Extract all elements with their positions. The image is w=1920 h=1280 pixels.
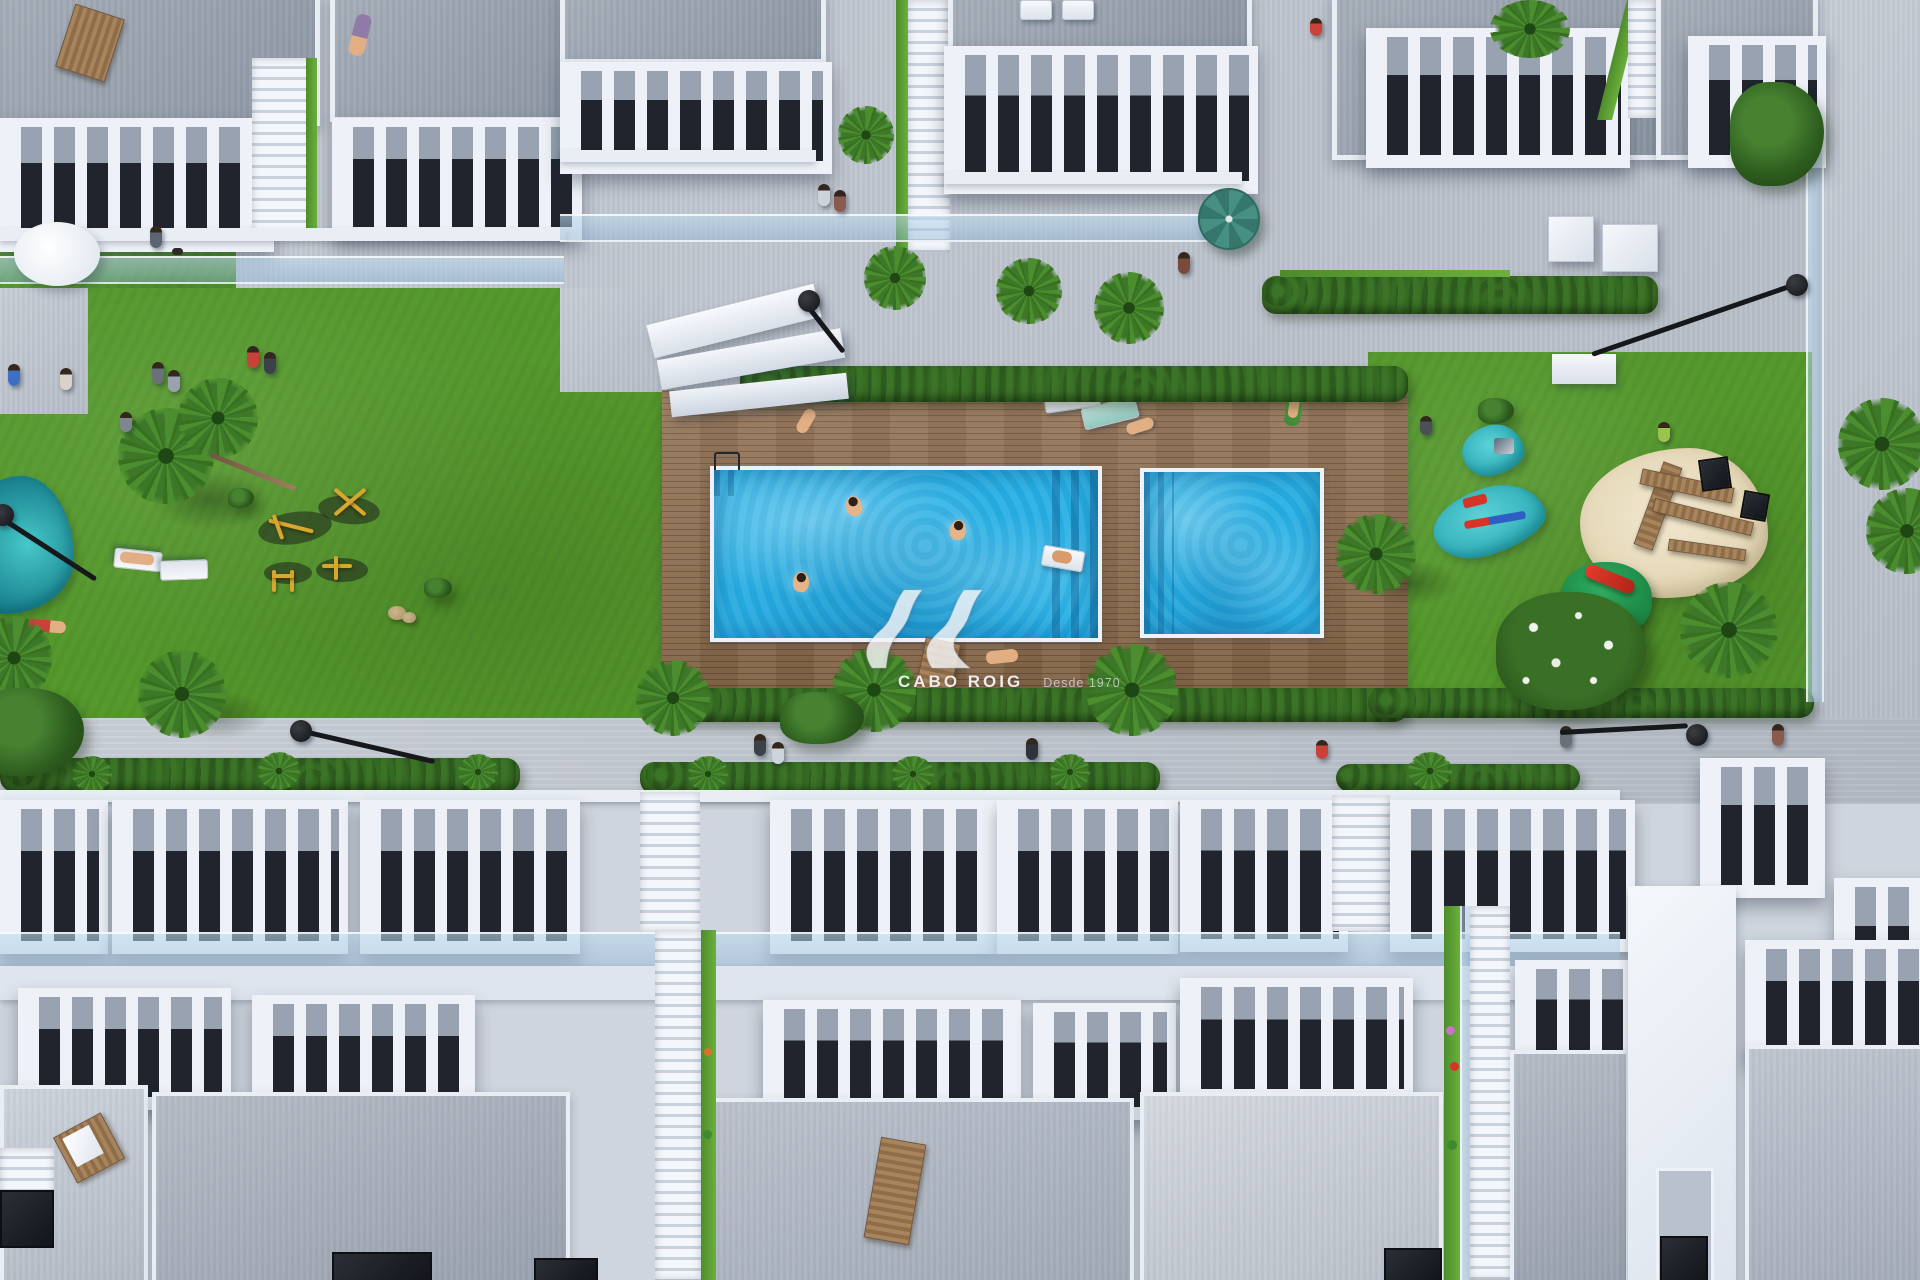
rooftop-terrace <box>1745 1045 1920 1280</box>
balcony-terrace <box>1745 940 1920 1062</box>
parasol <box>1198 188 1260 250</box>
seated-person <box>1178 252 1190 274</box>
palm-tree <box>1490 0 1570 58</box>
pedestrian <box>1772 724 1784 746</box>
pedestrian <box>834 190 846 212</box>
building-base <box>560 150 816 162</box>
rocks <box>402 612 416 623</box>
balcony-terrace <box>1180 800 1348 952</box>
alley-flower <box>704 1048 712 1056</box>
watermark: CABO ROIG Desde 1970 <box>856 586 1256 692</box>
pedestrian <box>60 368 72 390</box>
gym-mat <box>316 558 368 582</box>
white-canopy <box>14 222 100 286</box>
pedestrian <box>1026 738 1038 760</box>
solar-panel <box>1384 1248 1442 1280</box>
alley-flower <box>1446 1026 1455 1035</box>
sandbox-toy <box>1494 438 1514 454</box>
staircase <box>1332 795 1390 931</box>
lawn-lounger <box>160 559 209 581</box>
street-palm <box>458 754 498 790</box>
balcony-terrace <box>770 800 998 954</box>
pedestrian <box>8 364 20 386</box>
palm-tree <box>1680 582 1778 678</box>
pool-corner-steps <box>714 470 736 496</box>
balcony-terrace <box>1366 28 1630 168</box>
palm-tree <box>996 258 1062 324</box>
alley-plant <box>1447 1140 1457 1150</box>
street-lamp <box>1686 724 1708 746</box>
alley-staircase <box>1470 906 1510 1280</box>
street-palm <box>72 756 112 792</box>
palm-tree <box>178 378 258 458</box>
pedestrian <box>264 352 276 374</box>
palm-tree <box>1094 272 1164 344</box>
pedestrian <box>247 346 259 368</box>
green-strip <box>1280 270 1510 277</box>
stair-green-strip <box>306 58 317 236</box>
staircase <box>252 58 314 236</box>
gym-equipment <box>272 574 294 578</box>
pool-ladder <box>714 452 740 470</box>
cube-planter <box>1548 216 1594 262</box>
pedestrian <box>772 742 784 764</box>
climbing-panel <box>1740 490 1770 522</box>
palm-tree <box>838 106 894 164</box>
pedestrian <box>754 734 766 756</box>
street-palm <box>892 756 934 792</box>
staircase <box>1628 0 1658 118</box>
pedestrian <box>1420 416 1432 435</box>
rooftop <box>560 0 826 64</box>
balcony-terrace <box>1390 800 1635 952</box>
street-lamp <box>1786 274 1808 296</box>
street-palm <box>1408 752 1452 790</box>
hedge-upper-right <box>1262 276 1658 314</box>
alley-staircase <box>655 930 701 1280</box>
street-palm <box>1050 754 1090 790</box>
roof-lounger <box>1020 0 1052 20</box>
palm-tree <box>636 660 710 736</box>
watermark-brand: CABO ROIG <box>898 672 1023 692</box>
glass-balustrade <box>560 214 1242 242</box>
building-base <box>944 172 1242 184</box>
gym-equipment <box>334 556 338 580</box>
dog <box>172 248 183 255</box>
solar-panel <box>534 1258 598 1280</box>
alley-flower <box>1450 1062 1459 1071</box>
alley-green-strip <box>1444 906 1460 1280</box>
palm-tree <box>138 650 226 738</box>
pedestrian <box>152 362 164 384</box>
balcony-terrace <box>360 800 580 954</box>
pedestrian <box>150 226 162 248</box>
pedestrian <box>818 184 830 206</box>
glass-balustrade <box>1806 150 1824 702</box>
pedestrian <box>1310 18 1322 36</box>
watermark-tagline: Desde 1970 <box>1043 676 1120 690</box>
cube-planter <box>1602 224 1658 272</box>
hedge-bottom <box>662 688 1408 722</box>
palm-tree <box>1838 398 1920 490</box>
solar-panel <box>332 1252 432 1280</box>
deck-entry-court <box>560 288 664 392</box>
pedestrian-wheelchair <box>168 370 180 392</box>
palm-tree <box>864 246 926 310</box>
balcony-terrace <box>1700 758 1825 898</box>
balcony-terrace <box>1180 978 1413 1102</box>
street-hedge <box>1336 764 1580 792</box>
rooftop-terrace <box>1510 1050 1630 1280</box>
balcony-terrace <box>112 800 348 954</box>
balcony-terrace <box>0 800 108 954</box>
pedestrian <box>1658 422 1670 442</box>
lawn-path-pocket <box>0 288 88 414</box>
alley-green-strip <box>701 930 716 1280</box>
climbing-panel <box>1698 456 1732 492</box>
solar-panel <box>0 1190 54 1248</box>
aerial-render-scene: CABO ROIG Desde 1970 <box>0 0 1920 1280</box>
palm-tree <box>1336 514 1416 594</box>
street-lamp <box>798 290 820 312</box>
av-wave-monogram-icon <box>856 586 1006 670</box>
street-palm <box>688 756 728 792</box>
pedestrian <box>120 412 132 432</box>
street-lamp <box>290 720 312 742</box>
balcony-terrace <box>997 800 1178 954</box>
balcony-terrace <box>332 118 582 240</box>
alley-plant <box>703 1130 712 1139</box>
garden-shed <box>1552 354 1616 384</box>
stairwell <box>1660 1236 1708 1280</box>
pedestrian <box>1316 740 1328 759</box>
staircase <box>640 792 700 932</box>
street-palm <box>258 752 300 790</box>
roof-lounger <box>1062 0 1094 20</box>
glass-balustrade <box>0 932 1620 970</box>
